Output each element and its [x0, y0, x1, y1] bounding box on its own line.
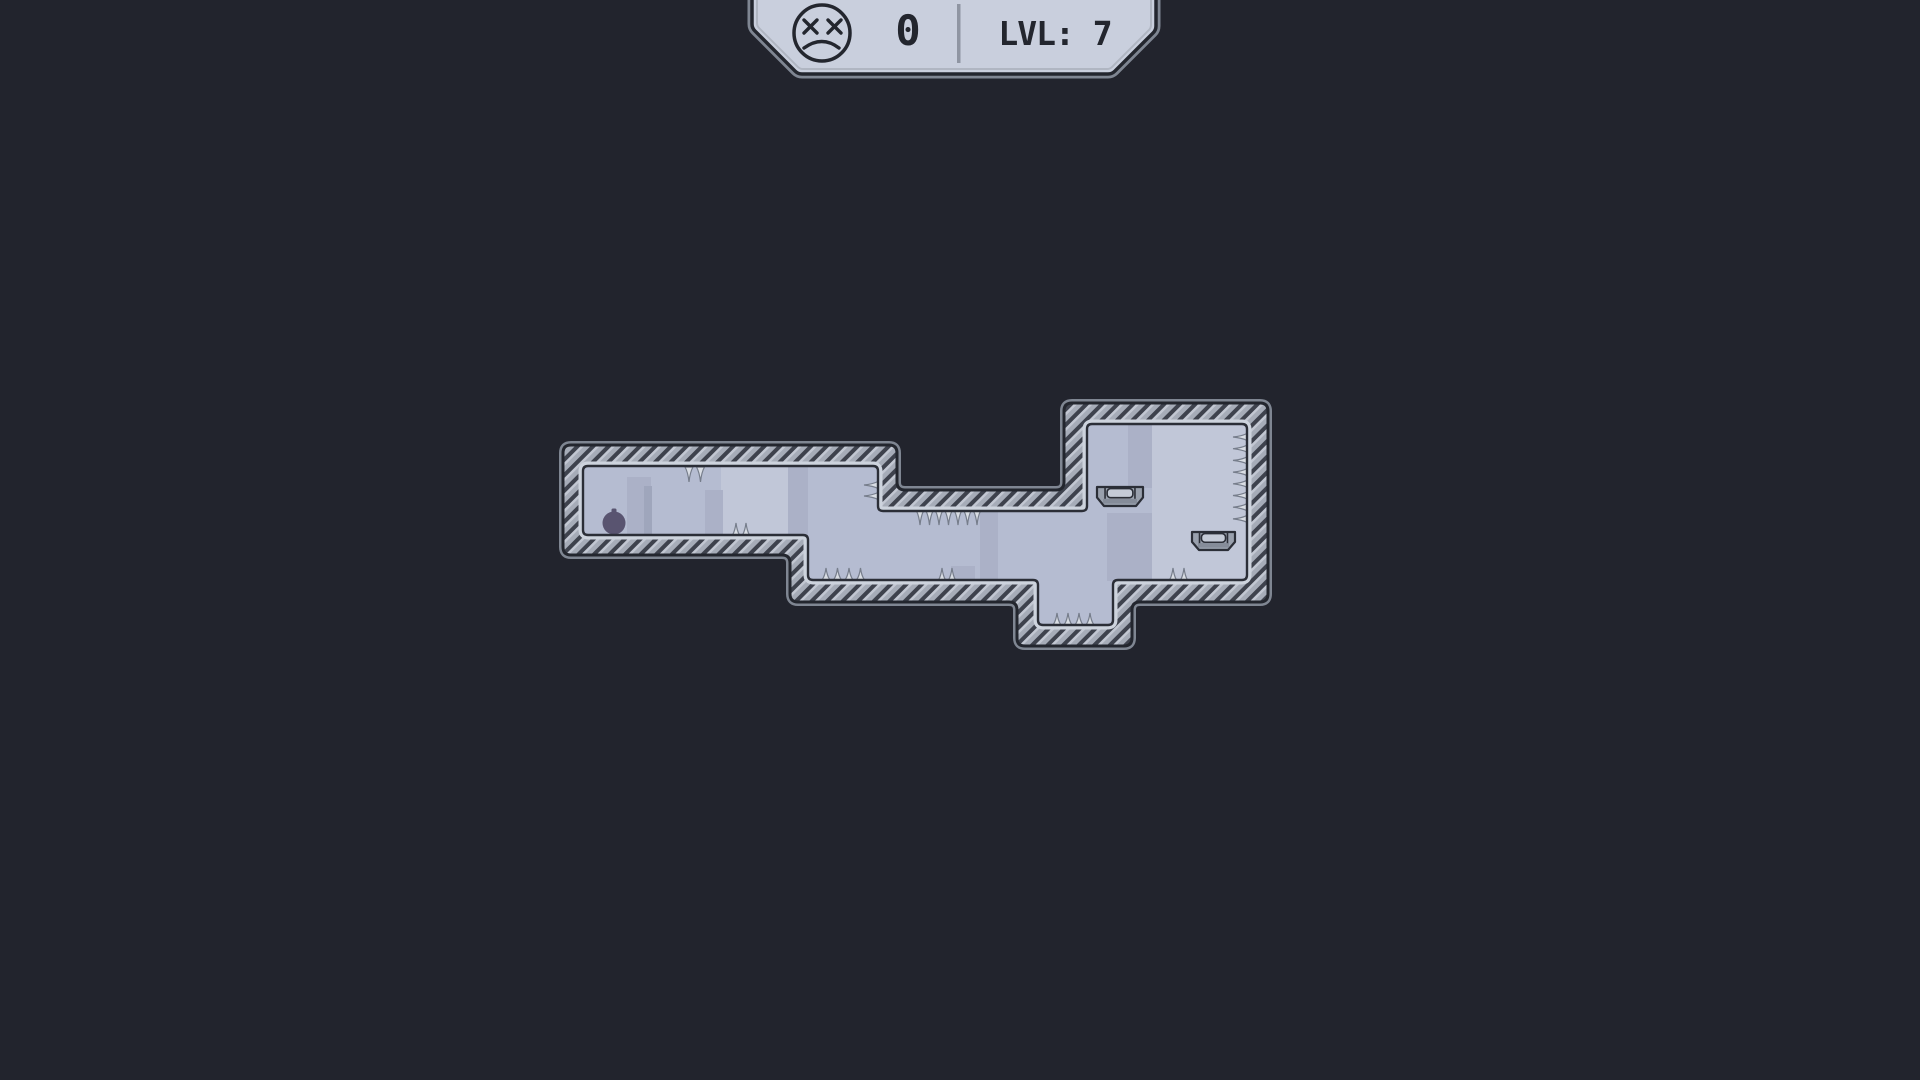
platform-shade — [1103, 499, 1137, 504]
hud-divider — [957, 4, 961, 63]
background-column — [1128, 424, 1152, 488]
background-column — [980, 511, 998, 581]
background-column — [721, 466, 788, 536]
platform-shade — [1198, 543, 1229, 548]
background-column — [1107, 513, 1152, 581]
background-column — [705, 490, 723, 536]
game-screen[interactable]: 0 LVL: 7 — [0, 0, 1920, 1080]
level-indicator: LVL: 7 — [998, 14, 1111, 53]
platform-cap — [1201, 534, 1225, 543]
platform-cap — [1107, 489, 1133, 498]
player-character — [603, 512, 626, 535]
background-column — [788, 466, 808, 536]
item-platform — [1097, 487, 1143, 506]
background-column — [644, 486, 652, 536]
item-platform — [1192, 532, 1235, 550]
background-column — [1152, 424, 1247, 581]
level-map — [563, 403, 1268, 646]
death-count: 0 — [895, 6, 920, 55]
game-canvas[interactable]: 0 LVL: 7 — [0, 0, 1920, 1080]
hud-panel: 0 LVL: 7 — [752, 0, 1156, 74]
